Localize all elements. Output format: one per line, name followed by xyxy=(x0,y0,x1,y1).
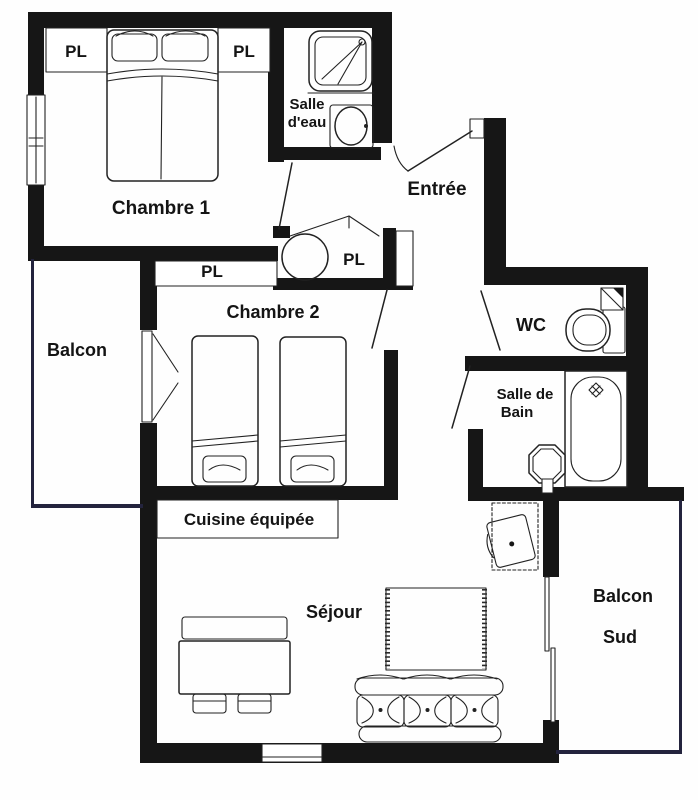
chambre1-window xyxy=(27,95,45,185)
basin-pedestal xyxy=(542,479,553,493)
rug xyxy=(386,588,486,670)
chair-knob xyxy=(509,541,515,547)
labels: PL PL Chambre 1 Salle d'eau Entrée PL PL… xyxy=(47,42,653,647)
pillow xyxy=(162,34,208,61)
entry-door xyxy=(394,119,484,171)
label-entree: Entrée xyxy=(407,179,466,200)
label-salle-de-bain-line2: Bain xyxy=(501,404,534,421)
wall-salle-eau-right xyxy=(372,12,392,143)
bathtub-outline xyxy=(565,371,627,487)
pedestal-washbasin xyxy=(529,445,565,493)
balcon-railing-left xyxy=(31,259,34,507)
cushion-button xyxy=(473,708,477,712)
pillow-crease xyxy=(297,465,328,470)
balcon-railing-bottom xyxy=(31,504,143,508)
blanket-fold xyxy=(192,441,258,447)
sejour-window xyxy=(262,744,322,762)
shower-tray xyxy=(309,31,372,91)
label-balcon: Balcon xyxy=(47,340,107,360)
shower-spray xyxy=(338,42,362,84)
wall-pl-closet-divider xyxy=(383,228,396,286)
single-bed-1 xyxy=(192,336,258,486)
door-jamb xyxy=(470,119,484,138)
chambre1-door-leaf xyxy=(279,163,292,229)
label-sejour: Séjour xyxy=(306,602,362,622)
label-wc: WC xyxy=(516,315,546,335)
wall-salle-eau-bottom xyxy=(273,147,381,160)
blanket-fold xyxy=(280,441,346,447)
door-frame xyxy=(142,331,152,422)
label-pl-chambre1-right: PL xyxy=(233,42,255,61)
water-heater xyxy=(282,234,328,280)
door-leaf xyxy=(153,334,178,372)
label-salle-eau-line1: Salle xyxy=(289,96,324,113)
label-cuisine: Cuisine équipée xyxy=(184,510,314,529)
wall-balconsud-left-upper xyxy=(543,495,559,577)
sofa-back xyxy=(355,678,503,695)
label-balcon-sud-line2: Sud xyxy=(603,627,637,647)
toilet-bowl-inner xyxy=(573,315,606,345)
door-leaves xyxy=(290,216,379,236)
label-chambre2: Chambre 2 xyxy=(226,302,319,322)
label-pl-entree: PL xyxy=(343,250,365,269)
sliding-panel xyxy=(545,577,549,651)
label-chambre1: Chambre 1 xyxy=(112,198,211,219)
door-leaf xyxy=(408,131,472,171)
corner-washbasin xyxy=(601,288,623,310)
floor-plan-page: PL PL Chambre 1 Salle d'eau Entrée PL PL… xyxy=(0,0,698,800)
bench xyxy=(182,617,287,639)
basin-bowl xyxy=(335,107,367,145)
wall-chambre2-bottom xyxy=(140,486,398,500)
salle-de-bain-door-leaf xyxy=(452,366,470,428)
toilet xyxy=(566,307,625,353)
chair xyxy=(193,694,226,713)
duct-compartment xyxy=(396,231,413,286)
bed-center-crease xyxy=(161,77,162,179)
rug-outline xyxy=(386,588,486,670)
cushion-button xyxy=(379,708,383,712)
blanket-fold xyxy=(192,435,258,441)
pl-double-doors xyxy=(290,216,379,236)
balcon-sud-railing-bottom xyxy=(556,750,682,754)
wall-sdb-balconsud xyxy=(468,487,684,501)
water-heater-tank xyxy=(282,234,328,280)
dining-table xyxy=(179,641,290,694)
window-frame xyxy=(262,744,322,762)
bed-outline xyxy=(280,337,346,486)
basin-tap xyxy=(364,124,368,128)
double-bed xyxy=(107,30,218,181)
bathtub xyxy=(565,371,627,487)
sofa xyxy=(355,675,503,742)
balcon-sud-railing-right xyxy=(679,500,682,752)
blanket-fold xyxy=(107,69,218,74)
wall-right xyxy=(626,267,648,501)
floor-plan-svg: PL PL Chambre 1 Salle d'eau Entrée PL PL… xyxy=(0,0,698,800)
french-door-balcon xyxy=(142,331,178,422)
wc-door-leaf xyxy=(481,291,500,350)
sliding-panel xyxy=(551,648,555,722)
door-leaf xyxy=(153,383,178,420)
basin-octagon-inner xyxy=(533,449,561,479)
door-swing-arc xyxy=(394,146,408,171)
blanket-fold xyxy=(280,435,346,441)
washbasin-salle-eau xyxy=(330,105,373,148)
label-pl-chambre1-left: PL xyxy=(65,42,87,61)
label-salle-de-bain-line1: Salle de xyxy=(497,386,554,403)
chair xyxy=(238,694,271,713)
sofa-seat-front xyxy=(359,726,501,742)
label-balcon-sud-line1: Balcon xyxy=(593,586,653,606)
dining-set xyxy=(179,617,290,713)
openings xyxy=(27,95,555,762)
single-bed-2 xyxy=(280,337,346,486)
bed-outline xyxy=(192,336,258,486)
wall-chambre2-right xyxy=(384,350,398,487)
chambre2-door-leaf xyxy=(372,290,387,348)
wall-wc-top xyxy=(484,267,648,285)
shower xyxy=(308,31,374,93)
cushion-button xyxy=(426,708,430,712)
wall-sejour-bottom xyxy=(140,743,559,763)
wall-wc-sdb-divider xyxy=(465,356,627,371)
pillow-crease xyxy=(209,465,240,470)
sliding-door-balcon-sud xyxy=(545,577,555,722)
wall-entree-right xyxy=(484,118,506,285)
label-pl-chambre2: PL xyxy=(201,262,223,281)
wall-top xyxy=(28,12,392,28)
wall-pl-closet-jamb xyxy=(273,226,290,238)
wall-sejour-left xyxy=(140,423,157,763)
desk-chair xyxy=(482,514,536,569)
shower-spray xyxy=(322,42,362,79)
label-salle-eau-line2: d'eau xyxy=(288,114,327,131)
chair-seat xyxy=(486,514,536,568)
pillow xyxy=(112,34,157,61)
